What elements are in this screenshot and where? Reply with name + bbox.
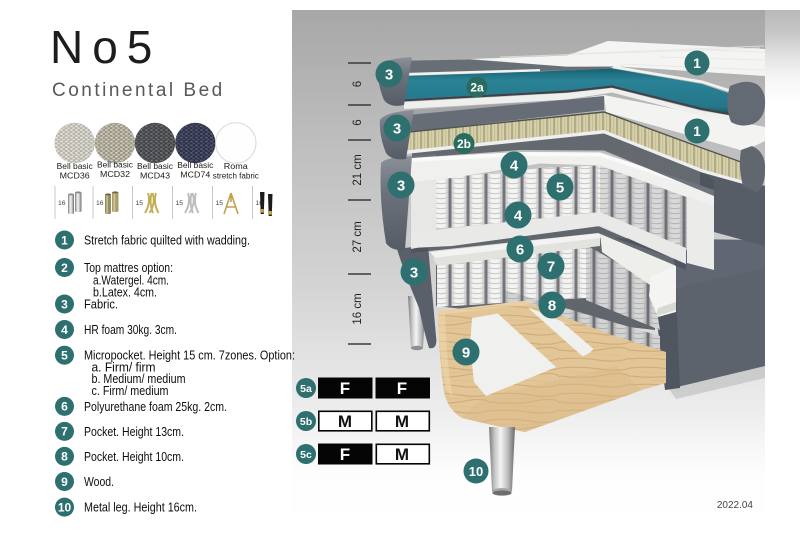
svg-text:27 cm: 27 cm — [352, 221, 364, 252]
svg-text:9: 9 — [462, 345, 470, 362]
svg-text:F: F — [340, 445, 350, 464]
svg-text:6: 6 — [352, 81, 364, 87]
svg-text:7: 7 — [547, 259, 555, 276]
svg-text:6: 6 — [352, 119, 364, 125]
svg-text:Polyurethane foam 25kg. 2cm.: Polyurethane foam 25kg. 2cm. — [84, 399, 227, 414]
svg-text:Roma: Roma — [224, 162, 249, 171]
svg-text:5c: 5c — [300, 449, 312, 461]
svg-text:M: M — [338, 412, 352, 431]
svg-text:5: 5 — [61, 349, 68, 363]
svg-text:c. Firm/ medium: c. Firm/ medium — [92, 383, 169, 398]
svg-text:1: 1 — [61, 233, 68, 247]
svg-text:10: 10 — [58, 500, 72, 514]
svg-text:Bell basic: Bell basic — [177, 161, 213, 170]
svg-text:Bell basic: Bell basic — [137, 162, 173, 171]
svg-text:3: 3 — [385, 67, 393, 84]
svg-text:10: 10 — [469, 464, 483, 479]
svg-text:2022.04: 2022.04 — [717, 500, 754, 511]
svg-text:1: 1 — [693, 123, 701, 139]
svg-text:Continental Bed: Continental Bed — [52, 80, 225, 101]
svg-text:F: F — [397, 379, 407, 398]
svg-text:6: 6 — [516, 242, 524, 259]
svg-text:No5: No5 — [50, 21, 161, 73]
svg-text:3: 3 — [393, 121, 401, 138]
svg-text:15: 15 — [136, 200, 144, 207]
svg-text:21 cm: 21 cm — [352, 154, 364, 185]
svg-text:1: 1 — [693, 55, 701, 71]
svg-text:15: 15 — [216, 200, 224, 207]
svg-text:MCD32: MCD32 — [100, 170, 131, 179]
svg-text:Pocket. Height 10cm.: Pocket. Height 10cm. — [84, 449, 184, 464]
svg-text:8: 8 — [61, 450, 68, 464]
svg-text:3: 3 — [61, 297, 68, 311]
svg-text:Stretch fabric quilted with wa: Stretch fabric quilted with wadding. — [84, 233, 250, 248]
svg-text:MCD74: MCD74 — [180, 171, 211, 180]
svg-text:16: 16 — [96, 200, 104, 207]
svg-text:M: M — [395, 445, 409, 464]
svg-text:2a: 2a — [470, 81, 484, 95]
svg-text:7: 7 — [61, 425, 68, 439]
svg-text:4: 4 — [510, 158, 519, 175]
svg-text:Fabric.: Fabric. — [84, 297, 118, 312]
svg-text:Bell basic: Bell basic — [57, 162, 93, 171]
svg-text:2b: 2b — [457, 137, 471, 151]
svg-text:5: 5 — [556, 180, 564, 197]
svg-text:5b: 5b — [300, 416, 312, 428]
svg-text:4: 4 — [514, 208, 523, 225]
svg-text:Bell basic: Bell basic — [97, 161, 133, 170]
svg-text:16 cm: 16 cm — [352, 293, 364, 324]
svg-text:Wood.: Wood. — [84, 474, 114, 489]
svg-text:M: M — [395, 412, 409, 431]
svg-text:3: 3 — [410, 265, 418, 282]
svg-text:F: F — [340, 379, 350, 398]
svg-text:8: 8 — [548, 298, 556, 315]
svg-text:5a: 5a — [300, 383, 312, 395]
svg-text:16: 16 — [58, 200, 66, 207]
svg-text:3: 3 — [397, 178, 405, 195]
svg-text:HR foam 30kg. 3cm.: HR foam 30kg. 3cm. — [84, 322, 177, 337]
svg-text:15: 15 — [176, 200, 184, 207]
svg-text:MCD36: MCD36 — [60, 172, 91, 181]
svg-text:MCD43: MCD43 — [140, 172, 171, 181]
svg-text:Pocket. Height 13cm.: Pocket. Height 13cm. — [84, 424, 184, 439]
svg-text:4: 4 — [61, 323, 68, 337]
svg-text:9: 9 — [61, 475, 68, 489]
svg-text:Metal leg. Height 16cm.: Metal leg. Height 16cm. — [84, 500, 197, 515]
svg-text:stretch fabric: stretch fabric — [213, 172, 259, 181]
svg-text:6: 6 — [61, 400, 68, 414]
svg-text:2: 2 — [61, 261, 68, 275]
